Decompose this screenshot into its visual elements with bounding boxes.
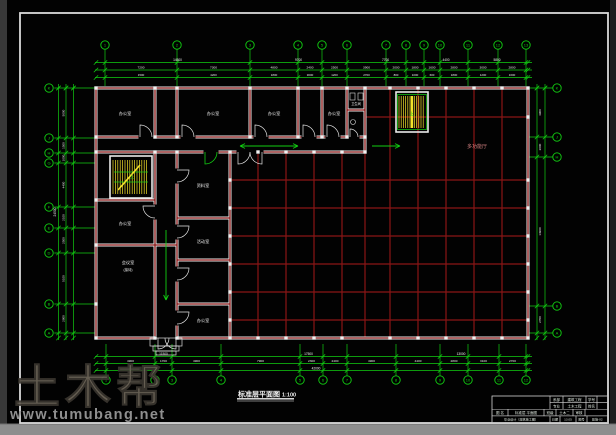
dim-text: 1600 bbox=[429, 66, 436, 70]
watermark-url: www.tumubang.net bbox=[9, 407, 166, 423]
column-marker bbox=[296, 86, 299, 89]
column-marker bbox=[312, 150, 315, 153]
dim-text: 14500 bbox=[173, 58, 182, 62]
dim-text: 2000 bbox=[538, 143, 542, 150]
column-marker bbox=[228, 150, 231, 153]
dim-text: 5800 bbox=[493, 58, 500, 62]
dim-text: 2800 bbox=[509, 66, 516, 70]
floor-plan-svg: 1450097007700440058007200730048002400250… bbox=[0, 0, 616, 435]
dim-text: 5100 bbox=[62, 275, 66, 282]
column-marker bbox=[296, 135, 299, 138]
dim-text: 1500 bbox=[138, 73, 145, 77]
column-marker bbox=[345, 135, 348, 138]
grid-bubble-label: B bbox=[48, 302, 51, 307]
dim-text: 2700 bbox=[538, 316, 542, 323]
column-marker bbox=[256, 150, 259, 153]
column-marker bbox=[526, 318, 529, 321]
column-marker bbox=[526, 234, 529, 237]
dim-text: 7700 bbox=[382, 58, 389, 62]
column-marker bbox=[444, 86, 447, 89]
column-marker bbox=[526, 262, 529, 265]
dim-text: 24500 bbox=[53, 207, 57, 216]
column-marker bbox=[284, 150, 287, 153]
dim-text: 2800 bbox=[451, 359, 458, 363]
column-marker bbox=[526, 206, 529, 209]
column-marker bbox=[444, 336, 447, 339]
grid-bubble-label: K bbox=[48, 86, 51, 91]
watermark-brand: 土木帮 bbox=[14, 361, 167, 413]
title-block-text: 学号 bbox=[588, 397, 596, 402]
column-marker bbox=[500, 336, 503, 339]
grid-bubble-label: 12 bbox=[524, 378, 529, 383]
room-label: 办公室 bbox=[328, 110, 341, 117]
dim-text: 4900 bbox=[538, 109, 542, 116]
title-block-text: 图号 bbox=[578, 417, 584, 422]
column-marker bbox=[363, 135, 366, 138]
column-marker bbox=[284, 336, 287, 339]
dim-text: 3900 bbox=[363, 66, 370, 70]
dim-text: 4400 bbox=[442, 58, 449, 62]
dim-text: 7300 bbox=[210, 66, 217, 70]
dim-text: 7900 bbox=[257, 359, 264, 363]
grid-bubble-label: A bbox=[556, 331, 559, 336]
grid-bubble-label: H bbox=[48, 151, 51, 156]
dim-text: 1200 bbox=[480, 73, 487, 77]
column-marker bbox=[388, 86, 391, 89]
column-marker bbox=[175, 150, 178, 153]
column-marker bbox=[153, 336, 156, 339]
grid-bubble-label: D bbox=[48, 251, 51, 256]
column-marker bbox=[320, 86, 323, 89]
column-marker bbox=[526, 178, 529, 181]
grid-bubble-label: B bbox=[556, 304, 559, 309]
column-marker bbox=[153, 150, 156, 153]
grid-bubble-label: E bbox=[48, 226, 51, 231]
column-marker bbox=[526, 115, 529, 118]
dim-text: 2400 bbox=[307, 66, 314, 70]
title-block-text: 标准层 平面图 bbox=[515, 410, 537, 415]
dim-text: 1800 bbox=[271, 73, 278, 77]
column-marker bbox=[94, 86, 97, 89]
dim-text: 4900 bbox=[193, 359, 200, 363]
dim-text: 3100 bbox=[480, 359, 487, 363]
column-marker bbox=[175, 86, 178, 89]
dim-text: 4900 bbox=[368, 359, 375, 363]
room-label: (接待) bbox=[123, 267, 132, 272]
dim-text: 1200 bbox=[331, 73, 338, 77]
dim-text: 42000 bbox=[312, 366, 321, 370]
drawing-scale: 1:100 bbox=[282, 393, 296, 399]
grid-bubble-label: 13 bbox=[524, 43, 529, 48]
column-marker bbox=[228, 336, 231, 339]
column-marker bbox=[526, 290, 529, 293]
dim-text: 2700 bbox=[509, 359, 516, 363]
dim-text: 3000 bbox=[480, 66, 487, 70]
column-marker bbox=[94, 243, 97, 246]
grid-bubble-label: H bbox=[556, 155, 559, 160]
dim-text: 2700 bbox=[363, 73, 370, 77]
column-marker bbox=[228, 178, 231, 181]
column-marker bbox=[175, 135, 178, 138]
column-marker bbox=[248, 86, 251, 89]
room-label: 办公室 bbox=[197, 317, 210, 324]
title-block-text: 土木二 bbox=[559, 410, 570, 415]
column-marker bbox=[526, 86, 529, 89]
grid-bubble-label: G bbox=[47, 161, 50, 166]
column-marker bbox=[388, 336, 391, 339]
column-marker bbox=[363, 86, 366, 89]
room-label: 卫生间 bbox=[351, 101, 361, 106]
title-block-text: 专业 bbox=[553, 403, 561, 408]
column-marker bbox=[94, 150, 97, 153]
dim-text: 4200 bbox=[210, 73, 217, 77]
dim-text: 13000 bbox=[457, 352, 466, 356]
dim-text: 2000 bbox=[393, 66, 400, 70]
column-marker bbox=[94, 336, 97, 339]
dim-text: 1600 bbox=[509, 73, 516, 77]
grid-bubble-label: J bbox=[556, 135, 558, 140]
bottom-gray-strip bbox=[0, 424, 616, 435]
dim-text: 7200 bbox=[138, 66, 145, 70]
dim-text: 14900 bbox=[538, 227, 542, 236]
column-marker bbox=[228, 234, 231, 237]
dim-text: 11500 bbox=[159, 352, 168, 356]
room-label: 活动室 bbox=[197, 238, 210, 245]
dim-text: 9700 bbox=[295, 58, 302, 62]
column-marker bbox=[94, 135, 97, 138]
dim-text: 2500 bbox=[331, 66, 338, 70]
title-block-text: 建施-02 bbox=[592, 417, 603, 422]
column-marker bbox=[228, 290, 231, 293]
column-marker bbox=[256, 336, 259, 339]
stair-up-label: 上 bbox=[410, 110, 414, 116]
dim-text: 1000 bbox=[412, 73, 419, 77]
dim-text: 600 bbox=[430, 73, 435, 77]
dim-text: 1800 bbox=[451, 73, 458, 77]
column-marker bbox=[472, 336, 475, 339]
grid-bubble-label: 10 bbox=[466, 378, 471, 383]
dim-text: 4400 bbox=[62, 181, 66, 188]
column-marker bbox=[312, 336, 315, 339]
column-marker bbox=[363, 150, 366, 153]
dim-text: 2300 bbox=[308, 359, 315, 363]
dim-text: 1000 bbox=[62, 154, 66, 161]
column-marker bbox=[153, 135, 156, 138]
column-marker bbox=[228, 318, 231, 321]
room-label: 办公室 bbox=[207, 110, 220, 117]
room-label: 办公室 bbox=[119, 220, 132, 227]
grid-bubble-label: K bbox=[556, 86, 559, 91]
column-marker bbox=[345, 86, 348, 89]
column-marker bbox=[416, 86, 419, 89]
dim-text: 2800 bbox=[451, 66, 458, 70]
stair-up-label: 上 bbox=[130, 173, 134, 179]
room-label: 办公室 bbox=[268, 110, 281, 117]
column-marker bbox=[248, 135, 251, 138]
column-marker bbox=[526, 336, 529, 339]
column-marker bbox=[320, 135, 323, 138]
column-marker bbox=[472, 86, 475, 89]
title-block-text: 图 名 bbox=[496, 410, 504, 415]
room-label: 会议室 bbox=[122, 259, 135, 266]
title-block-text: 日期 bbox=[552, 417, 558, 422]
column-marker bbox=[94, 198, 97, 201]
left-margin-strip bbox=[0, 0, 7, 424]
room-label: 多功能厅 bbox=[467, 143, 487, 150]
dim-text: 17500 bbox=[304, 352, 313, 356]
right-margin-strip bbox=[610, 0, 616, 424]
dim-text: 2900 bbox=[62, 315, 66, 322]
title-block-text: 系部 bbox=[553, 397, 561, 402]
column-marker bbox=[416, 336, 419, 339]
title-block-text: 毕业设计（建筑施工图） bbox=[504, 417, 538, 422]
dim-text: 2400 bbox=[332, 359, 339, 363]
column-marker bbox=[500, 86, 503, 89]
dim-text: 5000 bbox=[62, 109, 66, 116]
column-marker bbox=[228, 262, 231, 265]
cad-drawing-sheet: 1450097007700440058007200730048002400250… bbox=[0, 0, 616, 435]
dim-text: 4400 bbox=[415, 359, 422, 363]
title-block-text: 姓名 bbox=[588, 403, 595, 408]
grid-bubble-label: 10 bbox=[438, 43, 443, 48]
dim-text: 4800 bbox=[271, 66, 278, 70]
column-marker bbox=[94, 302, 97, 305]
dim-text: 1800 bbox=[412, 66, 419, 70]
grid-bubble-label: J bbox=[48, 136, 50, 141]
room-label: 办公室 bbox=[119, 110, 132, 117]
dim-text: 2100 bbox=[62, 214, 66, 221]
title-block-text: 土木工程 bbox=[568, 403, 582, 408]
title-block-text: 13.05 bbox=[564, 418, 572, 422]
dim-text: 3000 bbox=[307, 73, 314, 77]
column-marker bbox=[153, 86, 156, 89]
dim-text: 2500 bbox=[62, 237, 66, 244]
room-label: 资料室 bbox=[197, 182, 210, 189]
title-block-text: 审核 bbox=[576, 410, 584, 415]
column-marker bbox=[340, 336, 343, 339]
grid-bubble-label: 12 bbox=[496, 43, 501, 48]
column-marker bbox=[175, 336, 178, 339]
dim-text: 1500 bbox=[62, 142, 66, 149]
column-marker bbox=[340, 150, 343, 153]
column-marker bbox=[228, 206, 231, 209]
grid-bubble-label: A bbox=[48, 331, 51, 336]
dim-text: 800 bbox=[394, 73, 399, 77]
title-block-text: 建筑工程 bbox=[568, 397, 582, 402]
title-block-text: 班级 bbox=[547, 410, 555, 415]
